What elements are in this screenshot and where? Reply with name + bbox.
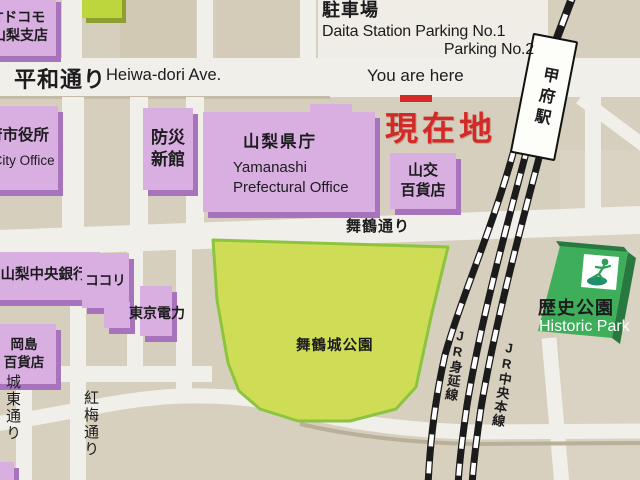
building-ntt-docomo: Tドコモ 山梨支店 xyxy=(0,0,56,56)
you-are-here-marker-bar xyxy=(400,95,432,102)
building-cocori-annex xyxy=(104,302,130,328)
building-small-green xyxy=(82,0,122,18)
building-label: 防災 xyxy=(151,127,185,149)
parking-title: 駐車場 xyxy=(322,0,534,20)
building-label: 山梨支店 xyxy=(0,26,48,44)
you-are-here-label-en: You are here xyxy=(367,66,464,86)
label-maizuru-castle-park: 舞鶴城公園 xyxy=(296,334,374,355)
maizuru-castle-park xyxy=(213,240,448,421)
label-historic-park-jp: 歴史公園 xyxy=(538,294,614,320)
parking-info: 駐車場 Daita Station Parking No.1 Parking N… xyxy=(322,0,534,59)
label-maizuru-dori: 舞鶴通り xyxy=(346,215,410,236)
building-label: 岡島 xyxy=(11,336,38,354)
building-label: Tドコモ xyxy=(0,8,45,26)
building-prefectural-office: 山梨県庁 Yamanashi Prefectural Office xyxy=(203,112,375,212)
building-edge-sliver xyxy=(0,462,14,480)
road-vertical-1 xyxy=(62,0,82,58)
building-label: 百貨店 xyxy=(400,181,445,201)
label-heiwa-dori-jp: 平和通り xyxy=(14,62,106,94)
building-label: 山梨県庁 xyxy=(243,132,317,154)
label-historic-park-en: Historic Park xyxy=(539,318,630,336)
building-label: 府市役所 xyxy=(0,126,49,146)
building-label: ココリ xyxy=(85,272,126,290)
person-in-park-icon xyxy=(581,254,619,290)
building-label: 百貨店 xyxy=(4,354,45,372)
building-tepco-label: 東京電力 xyxy=(129,303,185,323)
building-label: 山交 xyxy=(408,161,438,181)
building-label: 山梨中央銀行 xyxy=(1,266,88,285)
label-joto-dori: 城東通り xyxy=(2,374,23,442)
building-prefectural-office-annex xyxy=(310,104,352,114)
parking-line1: Daita Station Parking No.1 xyxy=(322,23,534,41)
building-cocori: ココリ xyxy=(82,253,129,308)
building-yamako-dept: 山交 百貨店 xyxy=(390,153,456,209)
building-label: Prefectural Office xyxy=(233,178,349,198)
label-kobai-dori: 紅梅通り xyxy=(80,390,101,458)
area-guide-map: Tドコモ 山梨支店 府市役所 u City Office 防災 新館 山梨県庁 … xyxy=(0,0,640,480)
you-are-here-label-jp: 現在地 xyxy=(385,102,496,150)
station-kofu-label: 甲府駅 xyxy=(526,64,562,130)
building-label: 新館 xyxy=(151,149,185,171)
building-city-office: 府市役所 u City Office xyxy=(0,106,58,190)
label-heiwa-dori-en: Heiwa-dori Ave. xyxy=(106,66,221,85)
building-label: u City Office xyxy=(0,152,55,170)
parking-line2: Parking No.2 xyxy=(322,41,534,59)
building-label: Yamanashi xyxy=(233,158,307,178)
building-bosai-shinkan: 防災 新館 xyxy=(143,108,193,190)
